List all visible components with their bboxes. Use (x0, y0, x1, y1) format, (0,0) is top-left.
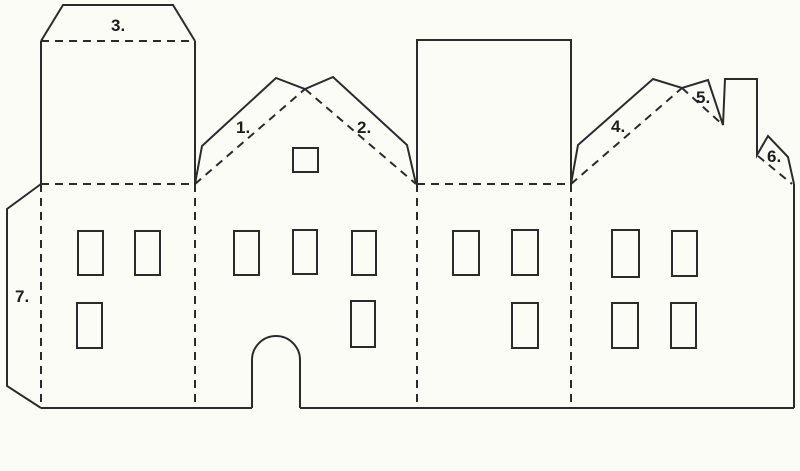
window (512, 230, 538, 275)
window (612, 230, 639, 277)
part-label-3: 3. (111, 16, 125, 35)
window (512, 303, 538, 348)
window (671, 303, 696, 348)
window (293, 230, 317, 274)
roof-chimney-outline (571, 79, 794, 184)
window (352, 231, 376, 275)
gable-window (293, 148, 318, 172)
window (672, 231, 697, 276)
part-label-6: 6. (767, 147, 781, 166)
window (351, 301, 375, 347)
part-label-5: 5. (696, 88, 710, 107)
roof-flaps-outline (195, 77, 416, 184)
house-1-tower (41, 5, 195, 348)
house-4-gabled-chimney (571, 79, 794, 348)
house-2-gabled (195, 77, 416, 408)
window (135, 231, 160, 275)
papercraft-house-template-drawing: 1. 2. 3. 4. 5. 6. 7. (0, 0, 800, 471)
part-label-1: 1. (236, 118, 250, 137)
window (77, 303, 102, 348)
part-label-4: 4. (611, 117, 625, 136)
window (453, 231, 479, 275)
flat-top-flap-outline (417, 40, 571, 184)
arched-door (252, 336, 300, 408)
facade-fold-lines (41, 184, 571, 408)
part-labels: 1. 2. 3. 4. 5. 6. 7. (15, 16, 781, 306)
part-label-7: 7. (15, 287, 29, 306)
part-label-2: 2. (357, 118, 371, 137)
window (234, 231, 259, 275)
window (78, 231, 103, 275)
house-3-flat-top (417, 40, 571, 348)
papercraft-house-template-page: 1. 2. 3. 4. 5. 6. 7. (0, 0, 800, 471)
window (612, 303, 638, 348)
